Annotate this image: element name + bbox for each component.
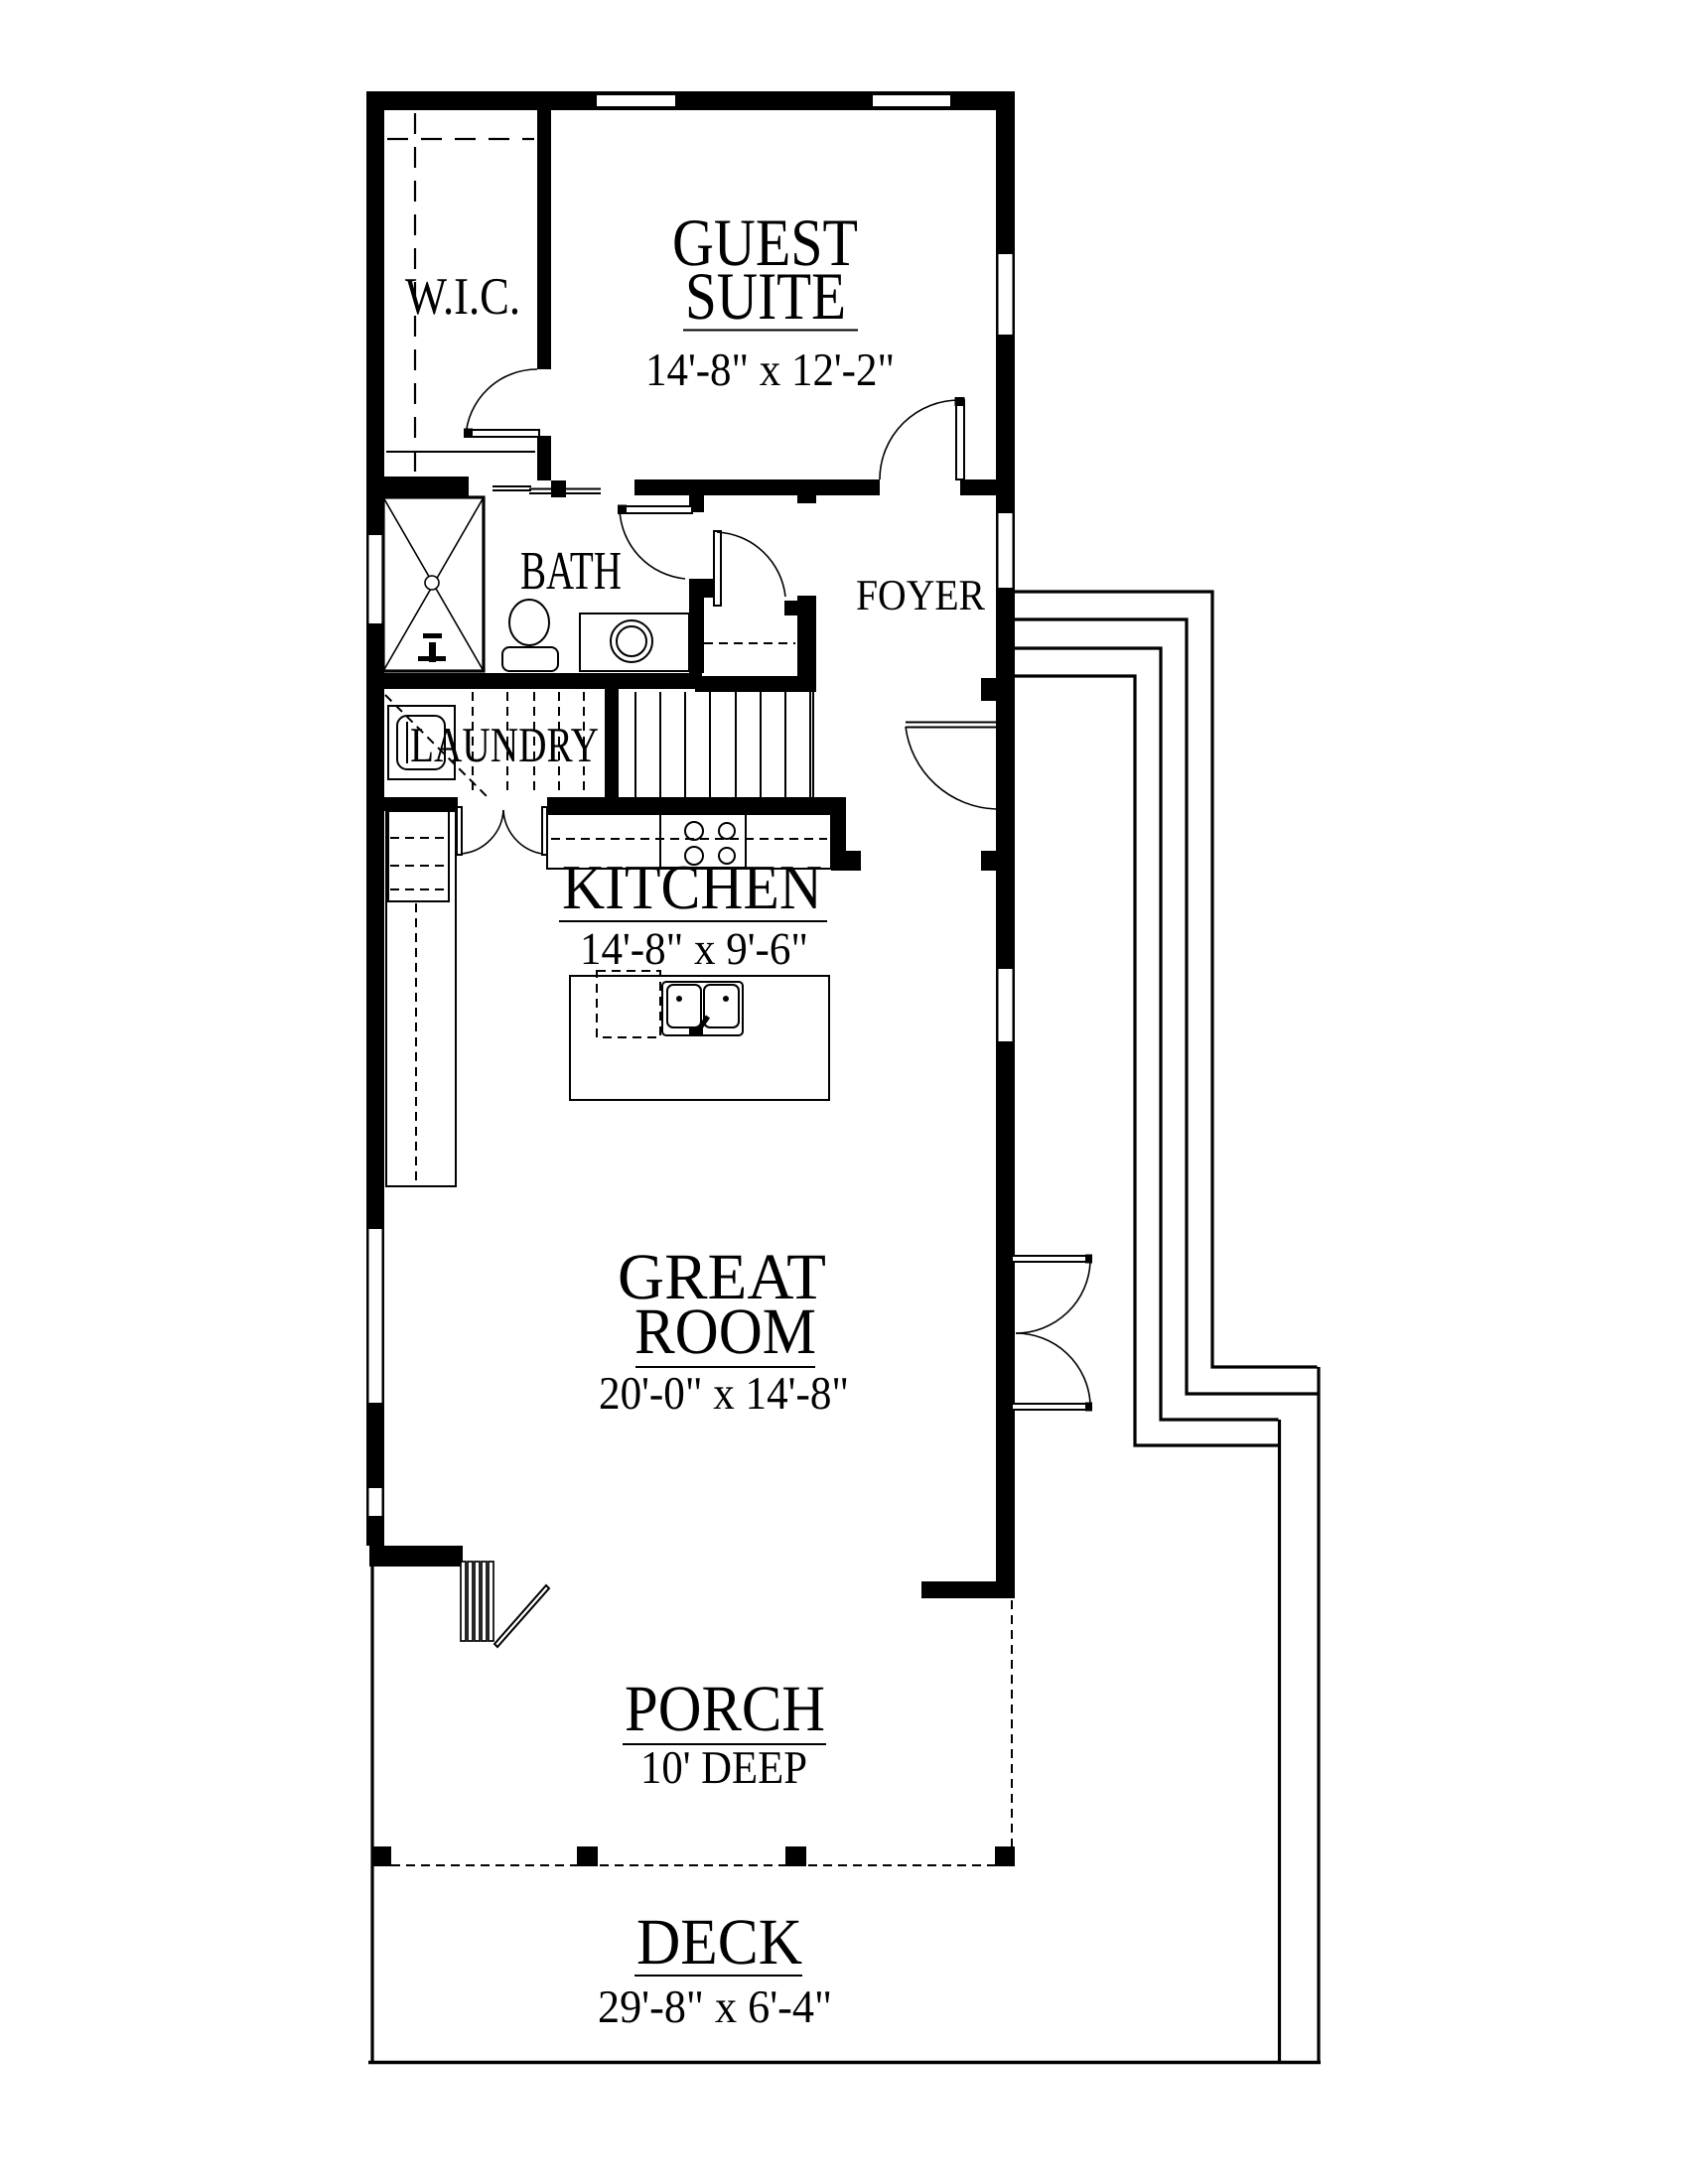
svg-text:LAUNDRY: LAUNDRY [410,717,599,772]
svg-text:ROOM: ROOM [634,1296,816,1368]
svg-text:KITCHEN: KITCHEN [562,852,822,922]
svg-text:14'-8" x 12'-2": 14'-8" x 12'-2" [645,344,895,396]
svg-text:SUITE: SUITE [685,258,846,334]
svg-text:FOYER: FOYER [856,571,986,619]
svg-text:20'-0" x 14'-8": 20'-0" x 14'-8" [599,1368,849,1420]
svg-text:BATH: BATH [520,540,622,601]
svg-text:14'-8" x 9'-6": 14'-8" x 9'-6" [580,923,808,974]
svg-text:29'-8" x 6'-4": 29'-8" x 6'-4" [598,1981,832,2033]
svg-text:10' DEEP: 10' DEEP [640,1742,807,1794]
svg-text:W.I.C.: W.I.C. [405,268,520,326]
svg-text:DECK: DECK [636,1906,802,1979]
svg-text:PORCH: PORCH [625,1673,825,1745]
